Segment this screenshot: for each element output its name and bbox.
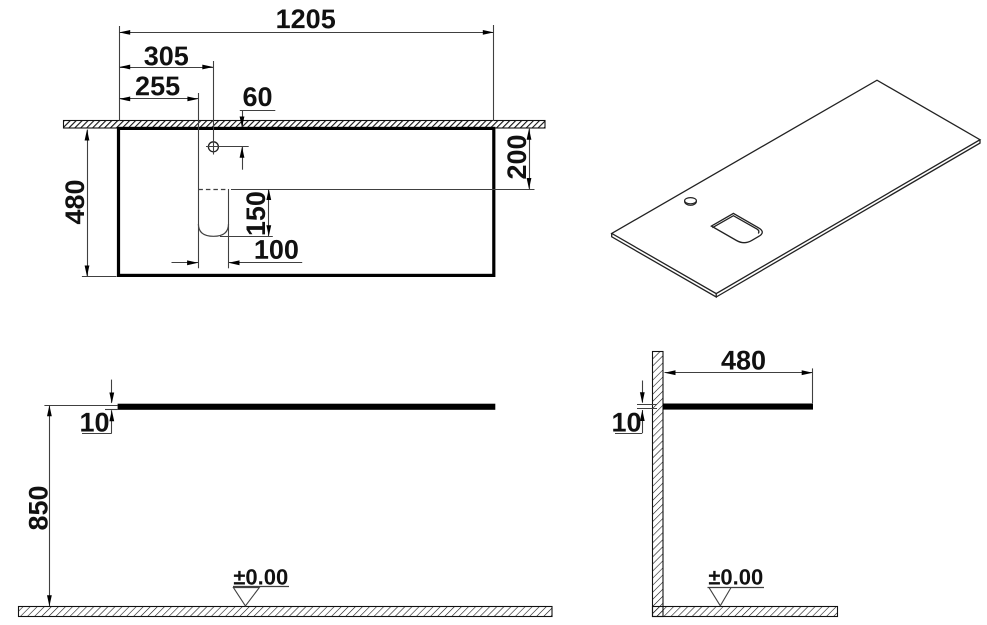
svg-text:60: 60 — [242, 82, 272, 112]
svg-text:200: 200 — [502, 134, 532, 179]
svg-text:10: 10 — [611, 407, 641, 437]
svg-text:1205: 1205 — [276, 4, 336, 34]
svg-text:10: 10 — [79, 407, 109, 437]
svg-text:480: 480 — [721, 345, 766, 375]
svg-text:±0.00: ±0.00 — [708, 564, 763, 589]
svg-text:150: 150 — [241, 191, 271, 236]
svg-text:255: 255 — [135, 71, 180, 101]
svg-text:480: 480 — [60, 179, 90, 224]
svg-text:305: 305 — [144, 41, 189, 71]
svg-text:100: 100 — [254, 235, 299, 265]
svg-text:850: 850 — [24, 485, 54, 530]
svg-text:±0.00: ±0.00 — [233, 564, 288, 589]
